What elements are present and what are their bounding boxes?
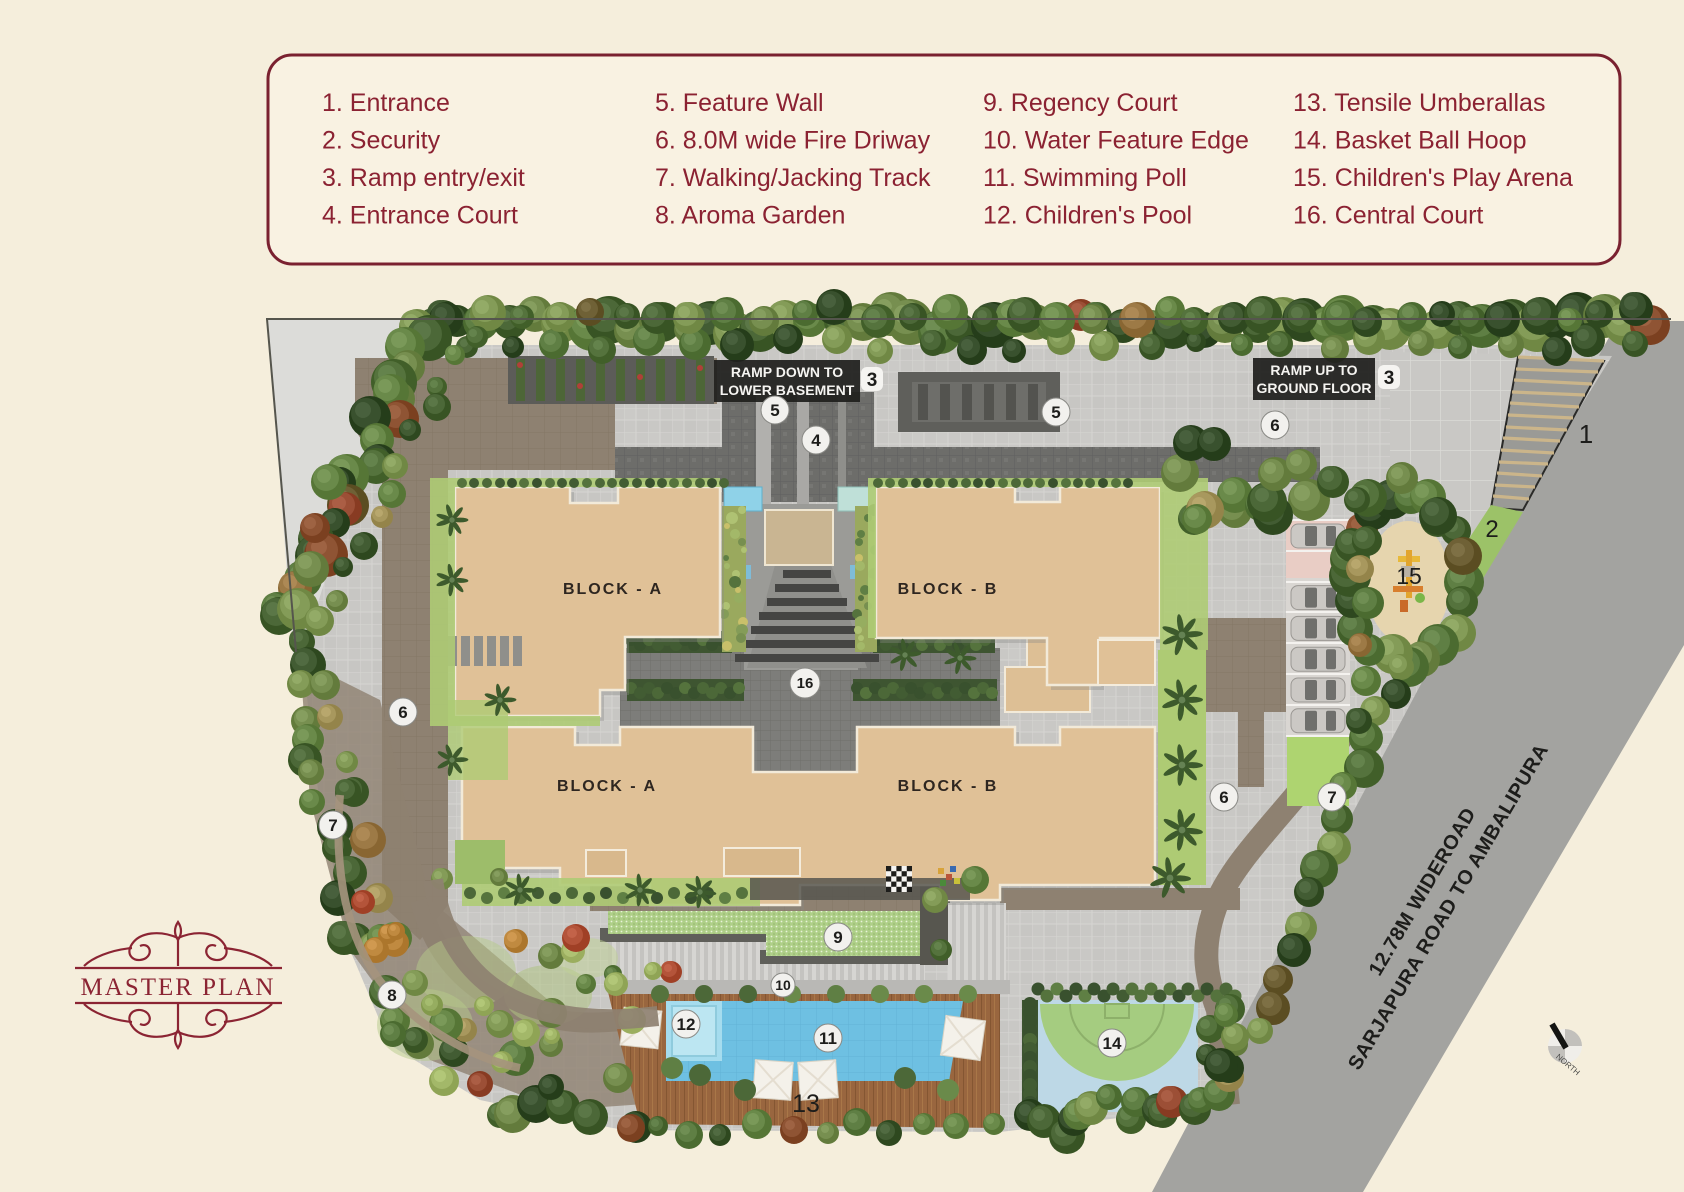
svg-text:12. Children's Pool: 12. Children's Pool <box>983 202 1192 230</box>
svg-text:15: 15 <box>1396 563 1422 589</box>
svg-text:13. Tensile Umberallas: 13. Tensile Umberallas <box>1293 89 1545 117</box>
svg-text:BLOCK - A: BLOCK - A <box>557 778 657 795</box>
svg-text:BLOCK - B: BLOCK - B <box>898 581 999 598</box>
svg-text:14: 14 <box>1103 1034 1122 1053</box>
svg-text:1. Entrance: 1. Entrance <box>322 89 450 117</box>
svg-text:6: 6 <box>1219 788 1228 807</box>
svg-text:11. Swimming Poll: 11. Swimming Poll <box>983 164 1187 192</box>
svg-text:6: 6 <box>1270 416 1279 435</box>
svg-text:13: 13 <box>792 1090 820 1118</box>
svg-text:3: 3 <box>867 370 878 391</box>
svg-text:16: 16 <box>797 675 814 692</box>
svg-text:11: 11 <box>819 1029 837 1048</box>
svg-text:2: 2 <box>1485 516 1498 543</box>
svg-text:12: 12 <box>677 1015 696 1034</box>
svg-text:5: 5 <box>770 401 779 420</box>
svg-text:10. Water Feature Edge: 10. Water Feature Edge <box>983 127 1249 155</box>
svg-text:4. Entrance Court: 4. Entrance Court <box>322 202 518 230</box>
svg-text:9. Regency Court: 9. Regency Court <box>983 89 1178 117</box>
svg-text:7: 7 <box>1327 788 1336 807</box>
svg-text:9: 9 <box>833 928 842 947</box>
svg-text:3: 3 <box>1384 368 1395 389</box>
svg-text:15. Children's Play Arena: 15. Children's Play Arena <box>1293 164 1573 192</box>
svg-text:BLOCK - B: BLOCK - B <box>898 778 999 795</box>
svg-text:2. Security: 2. Security <box>322 127 441 155</box>
svg-text:16. Central Court: 16. Central Court <box>1293 202 1483 230</box>
svg-text:7: 7 <box>328 816 337 835</box>
svg-text:6. 8.0M wide Fire Driway: 6. 8.0M wide Fire Driway <box>655 127 931 155</box>
svg-text:8: 8 <box>387 986 396 1005</box>
svg-text:LOWER BASEMENT: LOWER BASEMENT <box>720 382 855 398</box>
svg-text:RAMP UP TO: RAMP UP TO <box>1270 362 1357 378</box>
svg-text:14. Basket Ball Hoop: 14. Basket Ball Hoop <box>1293 127 1526 155</box>
svg-text:BLOCK - A: BLOCK - A <box>563 581 663 598</box>
svg-text:GROUND FLOOR: GROUND FLOOR <box>1256 380 1371 396</box>
svg-text:5: 5 <box>1051 403 1060 422</box>
svg-text:8. Aroma Garden: 8. Aroma Garden <box>655 202 845 230</box>
svg-text:1: 1 <box>1579 419 1593 449</box>
svg-text:6: 6 <box>398 703 407 722</box>
svg-text:MASTER PLAN: MASTER PLAN <box>81 974 276 1001</box>
svg-text:5. Feature Wall: 5. Feature Wall <box>655 89 824 117</box>
svg-text:3. Ramp entry/exit: 3. Ramp entry/exit <box>322 164 525 192</box>
svg-text:7. Walking/Jacking Track: 7. Walking/Jacking Track <box>655 164 931 192</box>
svg-text:RAMP DOWN TO: RAMP DOWN TO <box>731 364 843 380</box>
svg-text:4: 4 <box>811 431 821 450</box>
svg-text:10: 10 <box>775 977 791 993</box>
